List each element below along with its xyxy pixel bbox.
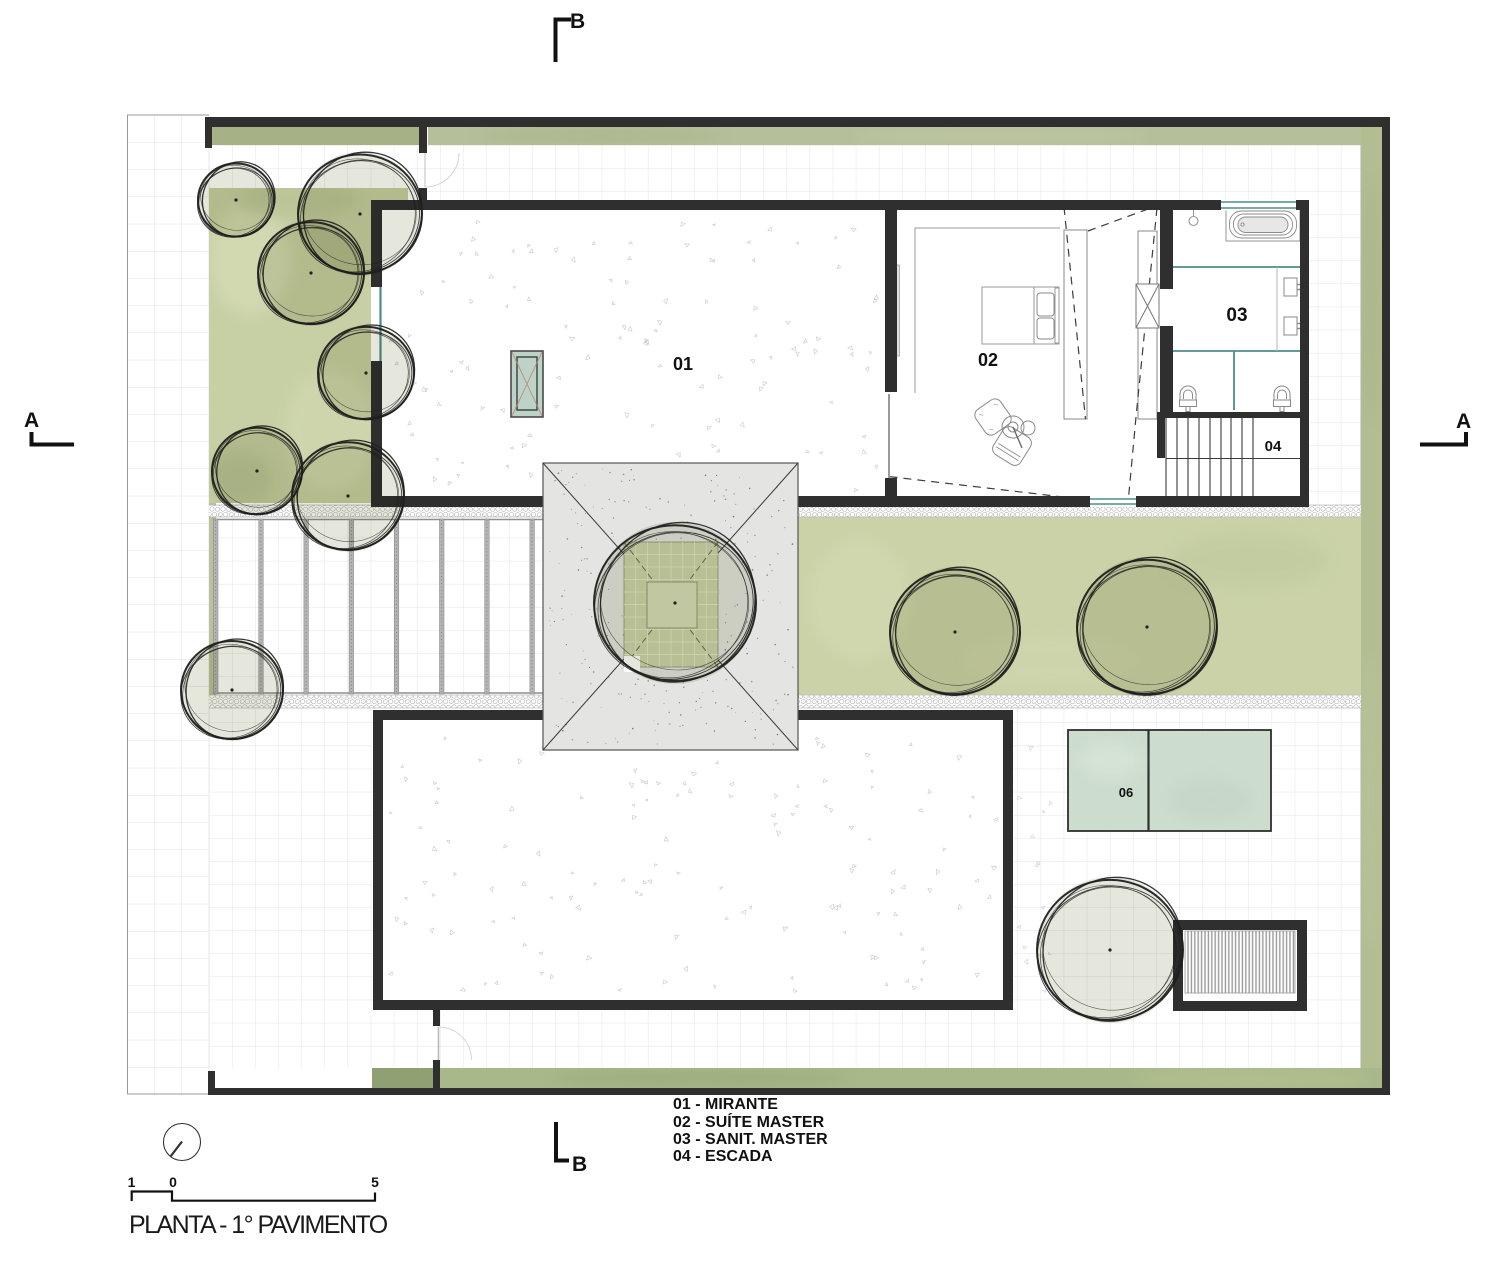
svg-text:A: A: [24, 409, 39, 432]
svg-text:0: 0: [169, 1174, 177, 1190]
svg-text:01: 01: [673, 354, 693, 374]
svg-text:06: 06: [1119, 785, 1133, 800]
svg-text:02: 02: [978, 350, 998, 370]
svg-text:1: 1: [128, 1174, 136, 1190]
svg-text:01 - MIRANTE: 01 - MIRANTE: [673, 1096, 778, 1113]
svg-text:B: B: [570, 10, 585, 33]
svg-text:PLANTA - 1° PAVIMENTO: PLANTA - 1° PAVIMENTO: [129, 1211, 388, 1239]
svg-text:02 - SUÍTE MASTER: 02 - SUÍTE MASTER: [673, 1112, 825, 1131]
svg-text:B: B: [572, 1153, 587, 1176]
svg-text:03 - SANIT. MASTER: 03 - SANIT. MASTER: [673, 1131, 828, 1148]
svg-text:03: 03: [1226, 305, 1247, 326]
svg-text:04: 04: [1265, 438, 1282, 455]
svg-text:A: A: [1456, 410, 1471, 433]
svg-text:5: 5: [371, 1174, 379, 1190]
svg-text:04 - ESCADA: 04 - ESCADA: [673, 1148, 773, 1165]
